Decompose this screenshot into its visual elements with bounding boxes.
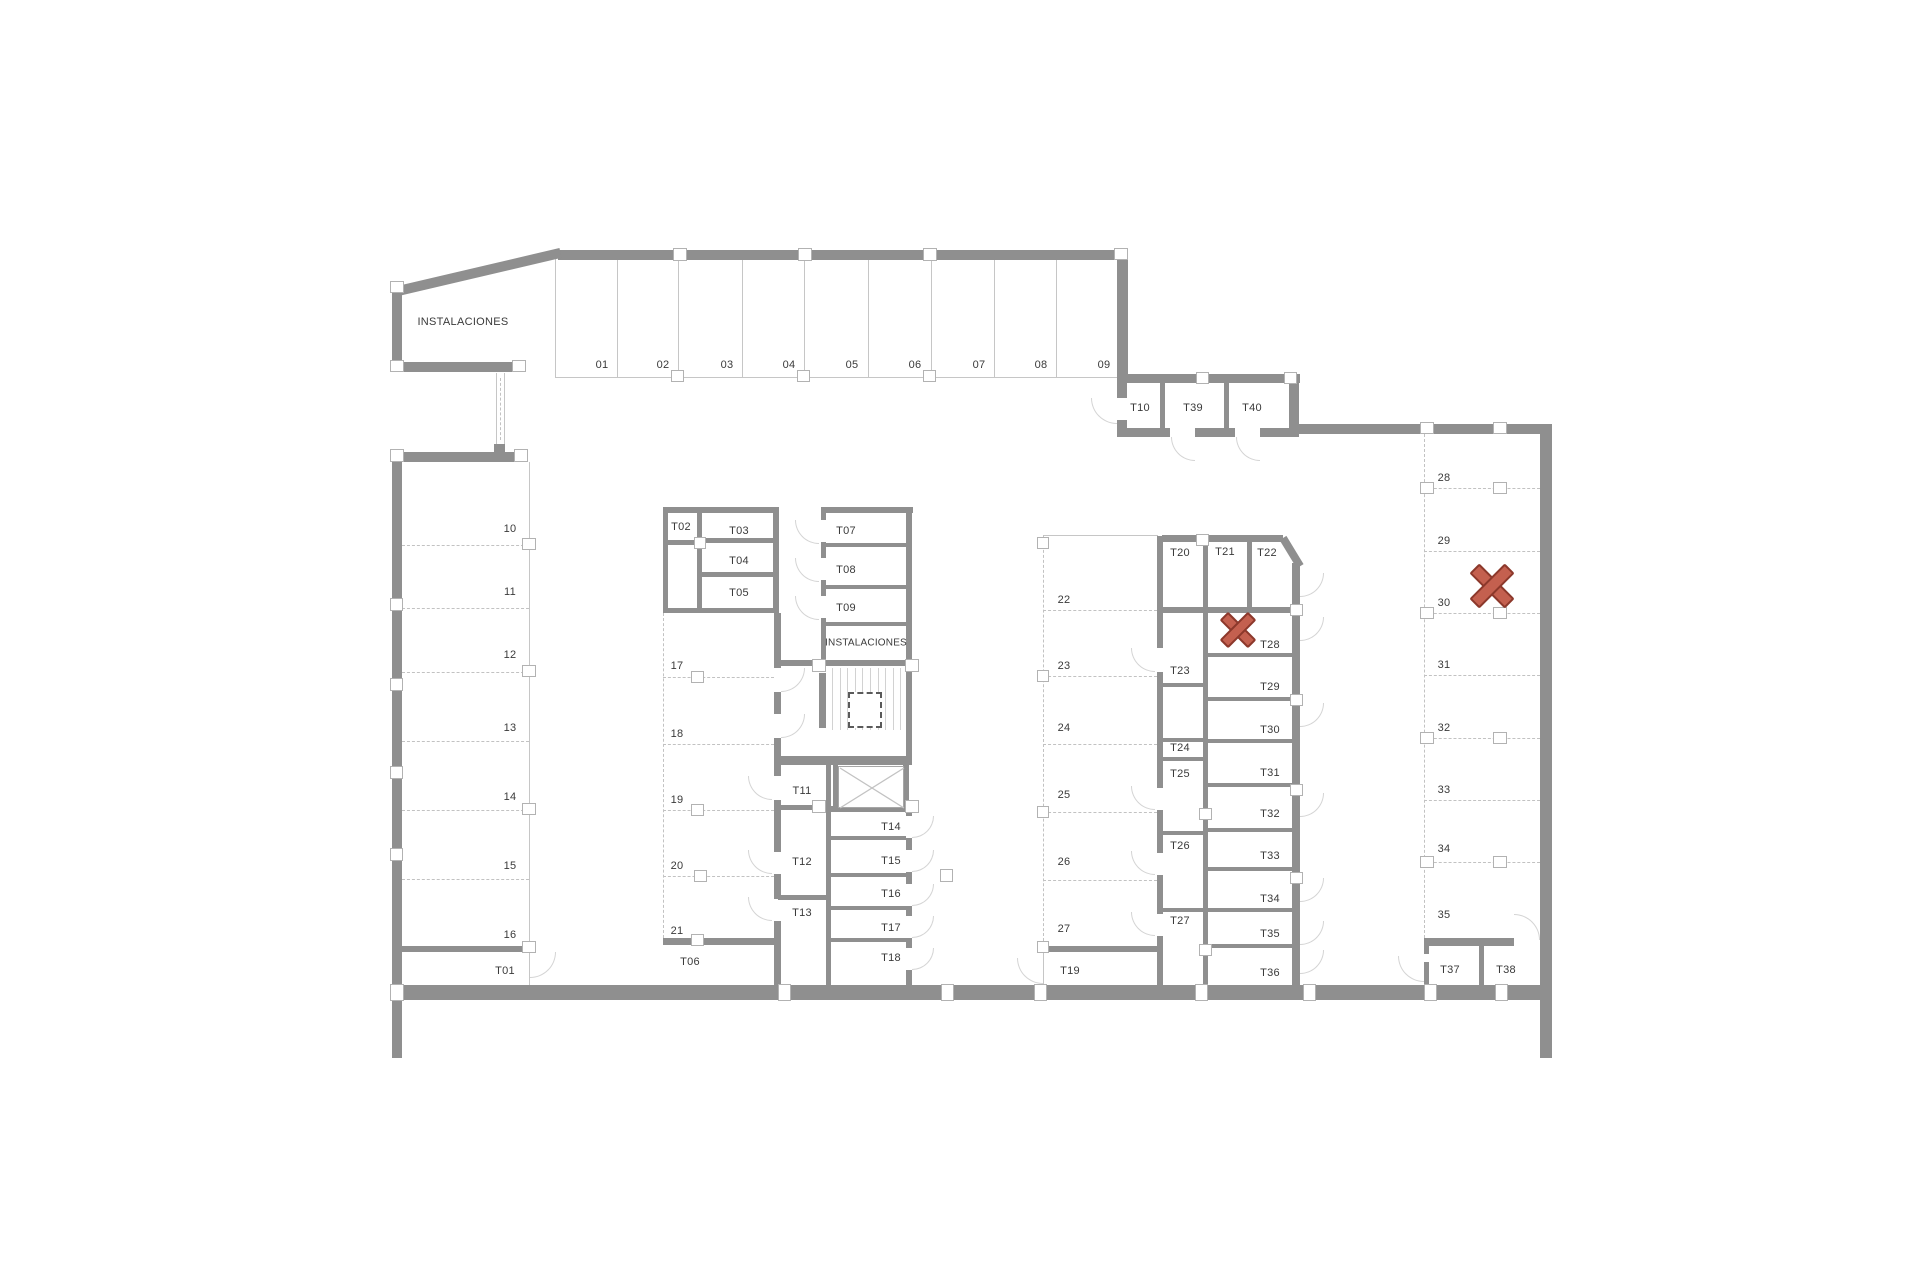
storage-room-label-t17: T17 [881,922,901,934]
pillar [1196,372,1209,384]
stair-shaft-dashed-outline [848,692,882,728]
parking-divider-line [1043,610,1157,611]
parking-spot-label-09: 09 [1098,359,1111,371]
parking-spot-label-34: 34 [1438,843,1451,855]
door-swing-arc [1300,921,1324,945]
pillar [1284,372,1297,384]
storage-room-label-t34: T34 [1260,893,1280,905]
wall [826,765,831,810]
layout-line [529,462,530,946]
layout-line [804,260,805,378]
pillar [390,766,403,779]
door-swing-arc [1300,878,1324,902]
storage-room-label-t39: T39 [1183,402,1203,414]
wall [826,543,906,547]
door-swing-arc [1300,950,1324,974]
wall [778,895,826,900]
door-swing-arc [795,520,819,544]
x-marker-parking-30 [1470,566,1514,606]
wall [702,572,773,577]
door-swing-arc [748,776,772,800]
door-swing-arc [795,558,819,582]
wall [1208,783,1292,787]
pillar [522,665,536,677]
wall [906,938,912,948]
wall [1117,383,1127,398]
parking-spot-label-26: 26 [1058,856,1071,868]
pillar [797,370,810,382]
pillar [1493,482,1507,494]
door-swing-arc [912,850,934,872]
wall [398,362,516,372]
stair-tread-line [840,668,841,730]
layout-line [868,260,869,378]
parking-spot-label-15: 15 [504,860,517,872]
parking-spot-label-23: 23 [1058,660,1071,672]
parking-divider-line [1043,880,1157,881]
wall [1117,428,1170,437]
wall [1424,962,1429,985]
storage-room-label-t08: T08 [836,564,856,576]
door-swing-arc [1300,703,1324,727]
parking-spot-label-12: 12 [504,649,517,661]
pillar [778,984,791,1001]
wall [392,452,402,1000]
wall [1208,944,1292,948]
pillar [1037,806,1049,818]
wall [1224,383,1229,432]
parking-spot-label-03: 03 [721,359,734,371]
wall [906,872,912,884]
wall [773,507,779,613]
parking-divider-line [1424,551,1540,552]
parking-spot-label-33: 33 [1438,784,1451,796]
stair-tread-line [893,668,894,730]
storage-room-label-t32: T32 [1260,808,1280,820]
parking-spot-label-24: 24 [1058,722,1071,734]
wall [831,836,906,840]
parking-spot-label-22: 22 [1058,594,1071,606]
pillar [390,360,404,372]
wall [1208,828,1292,832]
storage-room-label-t33: T33 [1260,850,1280,862]
wall [906,665,912,765]
instalaciones-room-label: INSTALACIONES [417,316,508,328]
layout-line [931,260,932,378]
pillar [1290,604,1303,616]
storage-room-label-t06: T06 [680,956,700,968]
wall [1043,946,1158,952]
wall [1162,535,1283,542]
parking-spot-label-20: 20 [671,860,684,872]
door-swing-arc [1131,912,1155,936]
storage-room-label-t30: T30 [1260,724,1280,736]
parking-divider-line [663,876,774,877]
parking-divider-line [1043,744,1157,745]
wall [1208,653,1292,657]
pillar [1034,984,1047,1001]
wall [1208,867,1292,871]
wall [402,946,529,952]
parking-spot-label-10: 10 [504,523,517,535]
storage-room-label-t18: T18 [881,952,901,964]
wall [1208,697,1292,701]
wall [1203,613,1208,985]
wall-diagonal [397,248,562,296]
wall [831,873,906,877]
wall [392,985,1552,1000]
wall [1162,908,1203,912]
parking-divider-line [402,608,529,609]
door-swing-arc [1131,648,1155,672]
parking-divider-line [1424,738,1540,739]
layout-line [496,373,497,445]
pillar [1303,984,1316,1001]
pillar [905,659,919,672]
wall [1260,428,1299,437]
parking-spot-label-07: 07 [973,359,986,371]
door-swing-arc [795,596,819,620]
wall [1203,542,1208,613]
wall [1195,428,1235,437]
parking-spot-label-19: 19 [671,794,684,806]
elevator-cross-icon [839,767,905,809]
parking-divider-line [663,810,774,811]
pillar [694,870,707,882]
pillar [1493,607,1507,619]
pillar [1493,422,1507,434]
storage-room-label-t16: T16 [881,888,901,900]
wall [1479,946,1484,985]
pillar [798,248,812,261]
storage-room-label-t09: T09 [836,602,856,614]
wall [1157,936,1163,985]
storage-room-label-t36: T36 [1260,967,1280,979]
pillar [1195,984,1208,1001]
wall [1162,683,1203,687]
storage-room-label-t31: T31 [1260,767,1280,779]
storage-room-label-t37: T37 [1440,964,1460,976]
wall [392,1000,402,1058]
pillar [905,800,919,813]
door-swing-arc [912,916,934,938]
pillar [390,281,404,293]
wall [392,288,402,370]
storage-room-label-t35: T35 [1260,928,1280,940]
pillar [671,370,684,382]
parking-divider-line [1043,676,1157,677]
stair-tread-line [900,668,901,730]
door-swing-arc [1017,958,1043,984]
pillar [390,678,403,691]
parking-spot-label-35: 35 [1438,909,1451,921]
parking-spot-label-05: 05 [846,359,859,371]
wall [826,585,906,589]
parking-spot-label-17: 17 [671,660,684,672]
pillar [1037,670,1049,682]
parking-divider-line [663,677,774,678]
stair-tread-line [885,668,886,730]
layout-line [555,258,556,378]
parking-divider-line [1424,800,1540,801]
parking-spot-label-14: 14 [504,791,517,803]
parking-spot-label-02: 02 [657,359,670,371]
door-swing-arc [530,952,556,978]
wall [663,938,774,945]
pillar [1495,984,1508,1001]
parking-divider-line [402,741,529,742]
wall [494,444,505,453]
storage-room-label-t29: T29 [1260,681,1280,693]
parking-boundary-line [1043,535,1044,946]
pillar [522,538,536,550]
parking-spot-label-16: 16 [504,929,517,941]
parking-spot-label-30: 30 [1438,597,1451,609]
pillar [1493,856,1507,868]
parking-spot-label-18: 18 [671,728,684,740]
layout-line [742,260,743,378]
pillar [691,804,704,816]
parking-spot-label-31: 31 [1438,659,1451,671]
parking-divider-line [1424,675,1540,676]
wall [1160,383,1165,432]
pillar [522,803,536,815]
wall [774,660,812,666]
parking-spot-label-06: 06 [909,359,922,371]
layout-line [617,260,618,378]
storage-room-label-t11: T11 [792,785,811,797]
door-swing-arc [1091,398,1117,424]
pillar [941,984,954,1001]
x-marker-storage-t28 [1221,615,1255,645]
door-swing-arc [912,816,934,838]
storage-room-label-t05: T05 [729,587,749,599]
pillar [1037,537,1049,549]
parking-divider-line [402,879,529,880]
storage-room-label-t12: T12 [792,856,812,868]
storage-room-label-t22: T22 [1257,547,1277,559]
door-swing-arc [748,850,772,874]
pillar [940,869,953,882]
pillar [1424,984,1437,1001]
wall [1424,938,1514,946]
parking-spot-label-21: 21 [671,925,684,937]
wall [697,513,702,608]
floor-plan: INSTALACIONESINSTALACIONES01020304050607… [0,0,1920,1280]
parking-spot-label-11: 11 [504,586,516,598]
pillar [390,848,403,861]
wall [826,660,912,666]
storage-room-label-t19: T19 [1060,965,1080,977]
wall [1247,542,1252,613]
storage-room-label-t38: T38 [1496,964,1516,976]
instalaciones-core-label: INSTALACIONES [825,638,907,649]
door-swing-arc [1300,617,1324,641]
storage-room-label-t10: T10 [1130,402,1150,414]
parking-spot-label-25: 25 [1058,789,1071,801]
pillar [1420,607,1434,619]
wall [821,513,826,520]
pillar [673,248,687,261]
pillar [812,800,826,813]
storage-room-label-t04: T04 [729,555,749,567]
pillar [390,984,404,1001]
pillar [1199,944,1212,956]
wall [702,538,773,543]
storage-room-label-t07: T07 [836,525,856,537]
wall [906,970,912,985]
storage-room-label-t02: T02 [671,521,691,533]
wall [1208,739,1292,743]
wall [774,756,912,765]
door-swing-arc [1131,851,1155,875]
parking-spot-label-32: 32 [1438,722,1451,734]
storage-room-label-t03: T03 [729,525,749,537]
storage-room-label-t23: T23 [1170,665,1190,677]
parking-spot-label-08: 08 [1035,359,1048,371]
door-swing-arc [781,668,805,692]
door-swing-arc [748,897,772,921]
stair-tread-line [832,668,833,730]
parking-divider-line [1043,812,1157,813]
parking-divider-line [402,545,529,546]
parking-divider-line [1424,613,1540,614]
storage-room-label-t27: T27 [1170,915,1190,927]
layout-line [1056,260,1057,378]
parking-spot-label-27: 27 [1058,923,1071,935]
wall [831,938,906,942]
layout-line [555,377,1117,378]
pillar [691,671,704,683]
door-swing-arc [1236,437,1260,461]
wall [558,250,1127,260]
pillar [514,449,528,462]
wall [826,622,906,626]
pillar [812,659,826,672]
wall [819,673,826,728]
layout-line [994,260,995,378]
wall [1292,568,1300,985]
wall [1208,908,1292,912]
wall [774,692,781,714]
storage-room-label-t40: T40 [1242,402,1262,414]
wall [831,906,906,910]
pillar [1199,808,1212,820]
parking-spot-label-04: 04 [783,359,796,371]
door-swing-arc [1300,793,1324,817]
wall [402,452,518,462]
pillar [512,360,526,372]
door-swing-arc [1398,956,1424,982]
parking-divider-line [1424,862,1540,863]
door-swing-arc [912,948,934,970]
storage-room-label-t25: T25 [1170,768,1190,780]
door-swing-arc [912,884,934,906]
wall [663,507,778,513]
door-swing-arc [1131,786,1155,810]
wall [663,608,779,613]
storage-room-label-t15: T15 [881,855,901,867]
storage-room-label-t21: T21 [1215,546,1235,558]
wall [774,921,781,985]
parking-divider-line [663,744,774,745]
parking-boundary-line [663,613,664,938]
parking-spot-label-13: 13 [504,722,517,734]
storage-room-label-t24: T24 [1170,742,1190,754]
wall [821,507,913,513]
layout-line [504,373,505,445]
wall [1162,757,1203,761]
wall [906,838,912,850]
pillar [691,934,704,946]
wall [906,906,912,916]
wall [1540,424,1552,1058]
pillar [694,537,706,549]
pillar [1420,482,1434,494]
wall [1117,252,1128,378]
pillar [1196,534,1209,546]
door-swing-arc [1171,437,1195,461]
pillar [923,370,936,382]
parking-divider-line [402,672,529,673]
elevator-shaft [838,766,904,808]
wall [1157,536,1163,648]
storage-room-label-t01: T01 [495,965,515,977]
pillar [1493,732,1507,744]
door-swing-arc [1300,573,1324,597]
duct-door-line [500,378,501,440]
door-swing-arc [781,714,805,738]
parking-spot-label-29: 29 [1438,535,1451,547]
pillar [1420,856,1434,868]
parking-spot-label-01: 01 [596,359,609,371]
pillar [390,598,403,611]
pillar [1114,248,1128,260]
parking-divider-line [1424,488,1540,489]
storage-room-label-t28: T28 [1260,639,1280,651]
wall [663,513,668,613]
pillar [1037,941,1049,953]
layout-line [678,260,679,378]
wall [1157,672,1163,788]
storage-room-label-t20: T20 [1170,547,1190,559]
layout-line [1043,535,1158,536]
door-swing-arc [1514,914,1540,940]
pillar [1420,422,1434,434]
pillar [1420,732,1434,744]
storage-room-label-t26: T26 [1170,840,1190,852]
wall [1424,946,1429,954]
storage-room-label-t13: T13 [792,907,812,919]
parking-divider-line [402,810,529,811]
wall [1162,831,1203,835]
storage-room-label-t14: T14 [881,821,901,833]
pillar [390,449,404,462]
pillar [923,248,937,261]
parking-spot-label-28: 28 [1438,472,1451,484]
